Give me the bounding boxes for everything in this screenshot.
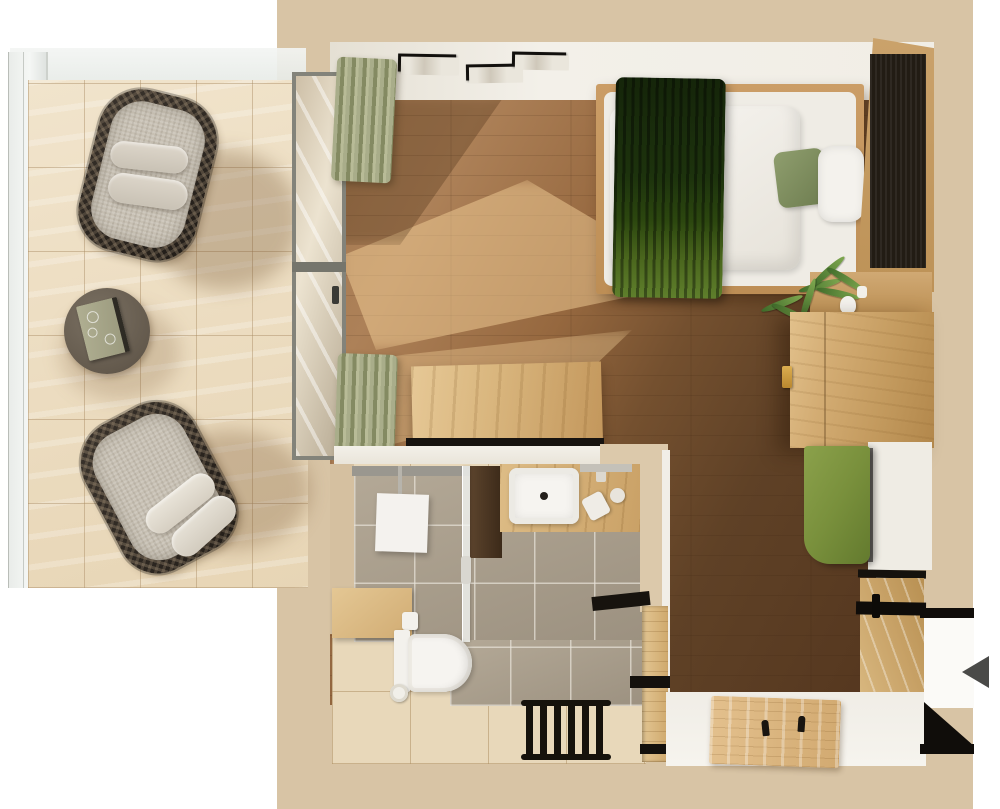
coat-board xyxy=(709,696,841,768)
oak-wardrobe xyxy=(790,312,934,448)
right-wall-white xyxy=(868,442,932,570)
wall-hung-toilet xyxy=(408,634,472,692)
panel-top-rail xyxy=(856,601,926,615)
towel-bar xyxy=(580,464,632,472)
gray-tiles-lower xyxy=(450,640,646,706)
shower-glass-partition xyxy=(462,466,470,642)
headboard-walnut-inset xyxy=(870,54,926,268)
walnut-partition xyxy=(470,466,502,558)
green-throw-blanket xyxy=(612,77,726,299)
wall-desk xyxy=(411,362,603,449)
basin-drain xyxy=(540,492,548,500)
framed-picture xyxy=(398,53,456,72)
coat-hook xyxy=(872,594,880,618)
shower-rail xyxy=(352,466,472,476)
door-frame-bottom xyxy=(920,744,974,754)
toilet-paper-roll xyxy=(390,684,408,702)
terrace-door-handle xyxy=(332,286,339,304)
wardrobe-gold-handle xyxy=(782,366,792,388)
curtain-bottom xyxy=(334,353,398,461)
rain-shower-head xyxy=(375,493,429,553)
coat-peg xyxy=(797,716,805,732)
book-on-table xyxy=(76,297,130,361)
towel-radiator xyxy=(526,702,606,758)
terrace-glass-railing-top xyxy=(10,48,306,82)
door-track xyxy=(630,676,670,688)
framed-picture xyxy=(512,52,566,68)
terrace-door-mullion xyxy=(292,262,346,272)
door-frame-top xyxy=(920,608,974,618)
bathroom-jar xyxy=(610,488,625,503)
round-side-table xyxy=(64,288,150,374)
entrance-arrow-icon xyxy=(962,656,989,688)
olive-bench xyxy=(804,446,870,564)
bathroom-accessory xyxy=(402,612,418,630)
small-jug xyxy=(857,286,867,298)
floorplan-stage xyxy=(0,0,1000,809)
white-pillow xyxy=(818,146,864,222)
glass-partition-handle xyxy=(461,556,471,584)
curtain-top xyxy=(331,57,397,184)
